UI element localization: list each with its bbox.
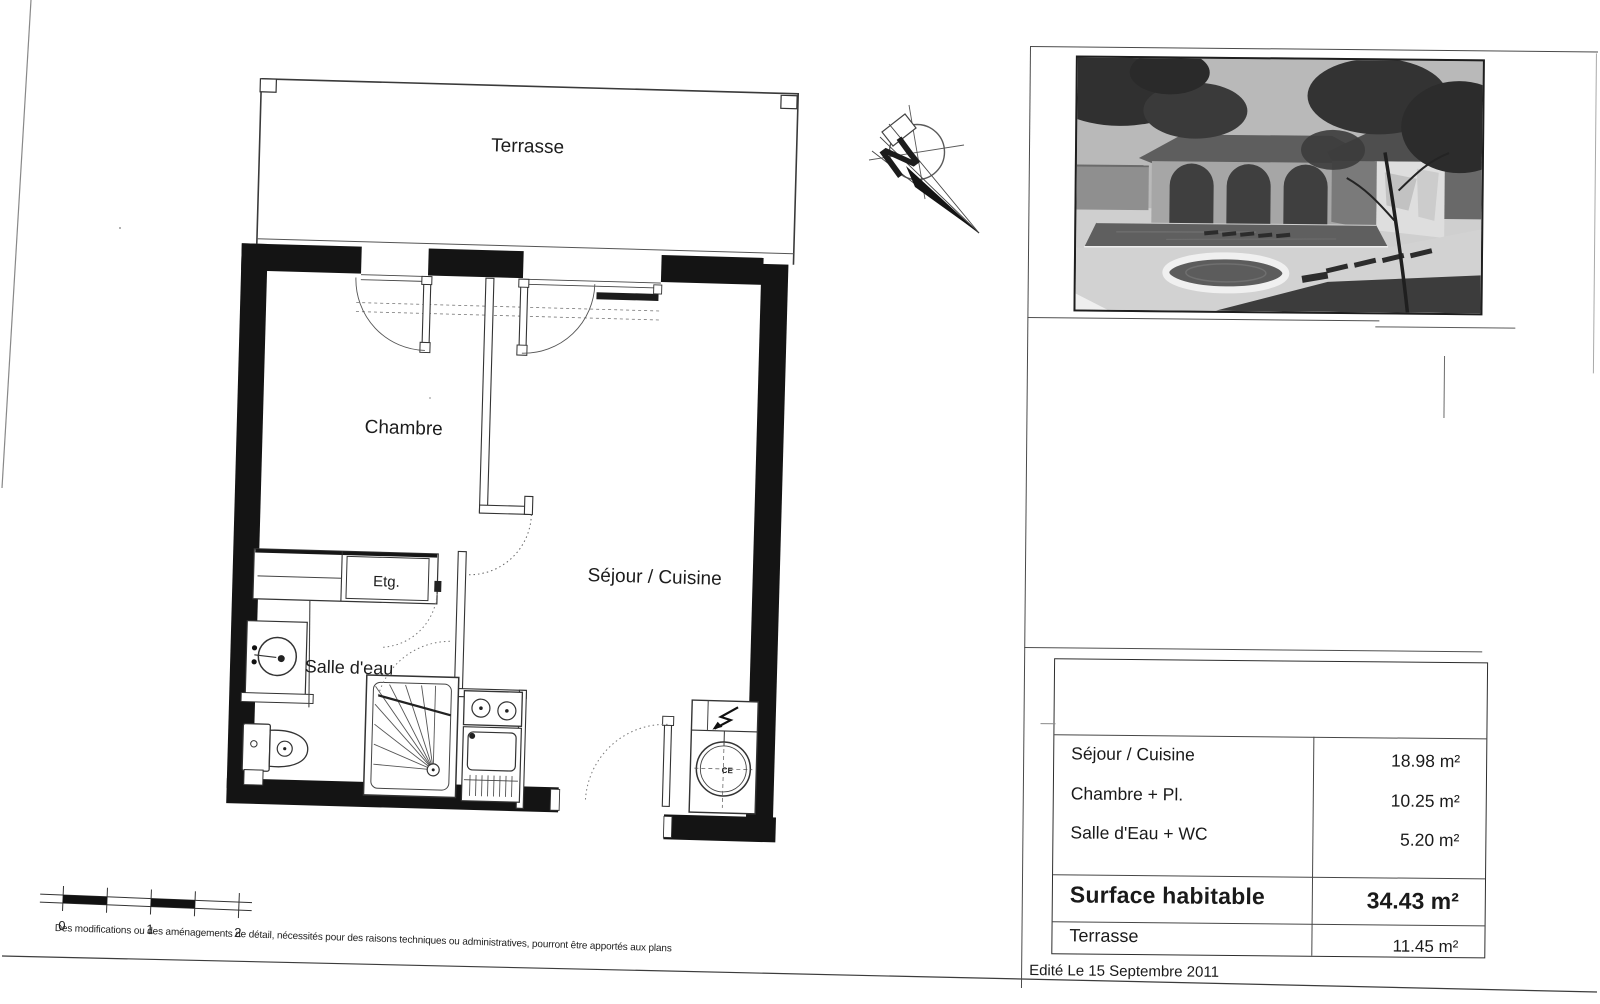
bedroom-label: Chambre — [364, 417, 443, 440]
row-value: 18.98 m² — [1391, 750, 1460, 772]
panel-divider — [1375, 326, 1515, 328]
table-row: Salle d'Eau + WC 5.20 m² — [1054, 822, 1486, 826]
round-spa — [1166, 255, 1286, 290]
swimming-pool — [1084, 223, 1388, 251]
water-heater-closet — [689, 700, 758, 814]
row-label: Chambre + Pl. — [1071, 783, 1184, 805]
residence-photo — [1073, 55, 1484, 315]
row-label: Salle d'Eau + WC — [1070, 822, 1207, 844]
row-value: 5.20 m² — [1400, 830, 1460, 852]
table-divider — [1053, 874, 1485, 879]
panel-right-border — [1593, 53, 1597, 373]
door-stop — [654, 285, 662, 294]
terrace-row-label: Terrasse — [1069, 925, 1138, 947]
table-notch — [1040, 723, 1055, 724]
edited-date: Edité Le 15 Septembre 2011 — [1029, 962, 1219, 981]
living-kitchen-label: Séjour / Cuisine — [587, 565, 722, 590]
apartment-floor-plan: Terrasse — [226, 78, 799, 842]
water-heater-label: CE — [722, 766, 734, 775]
hall-door-swing — [468, 513, 532, 577]
total-area-row: Surface habitable 34.43 m² — [1053, 881, 1485, 885]
north-compass: N — [869, 105, 979, 233]
terrace-row-value: 11.45 m² — [1392, 937, 1458, 958]
total-value: 34.43 m² — [1367, 887, 1459, 915]
scan-speck — [429, 397, 431, 399]
areas-table: Séjour / Cuisine 18.98 m² Chambre + Pl. … — [1051, 658, 1488, 958]
scan-edge-line — [2, 0, 31, 488]
living-room-door — [517, 279, 595, 357]
row-value: 10.25 m² — [1391, 790, 1460, 812]
table-row: Séjour / Cuisine 18.98 m² — [1054, 743, 1486, 747]
window-glazing — [596, 292, 658, 301]
terrace-label: Terrasse — [491, 135, 564, 158]
shower — [363, 675, 458, 798]
panel-line-stub — [1443, 356, 1445, 418]
title-block-panel: Séjour / Cuisine 18.98 m² Chambre + Pl. … — [1021, 46, 1600, 995]
table-row: Chambre + Pl. 10.25 m² — [1054, 783, 1486, 787]
wall-end-cap — [550, 789, 560, 810]
bathroom-label: Salle d'eau — [305, 656, 394, 678]
table-header-divider — [1054, 734, 1486, 739]
row-label: Séjour / Cuisine — [1071, 743, 1195, 765]
panel-divider — [1027, 317, 1379, 322]
background-building — [1076, 165, 1148, 210]
scan-speck — [119, 227, 121, 229]
kitchen-sink — [461, 727, 521, 803]
panel-divider — [1024, 647, 1482, 653]
total-label: Surface habitable — [1070, 881, 1265, 910]
wall-end-cap — [663, 816, 672, 837]
toilet — [242, 724, 309, 787]
bedroom-door — [354, 275, 432, 353]
entrance-door — [585, 714, 673, 806]
shelf-label: Etg. — [373, 573, 400, 591]
cooktop — [463, 691, 522, 727]
terrace-outline — [256, 79, 799, 265]
overhang-dashed-lines — [356, 303, 660, 320]
